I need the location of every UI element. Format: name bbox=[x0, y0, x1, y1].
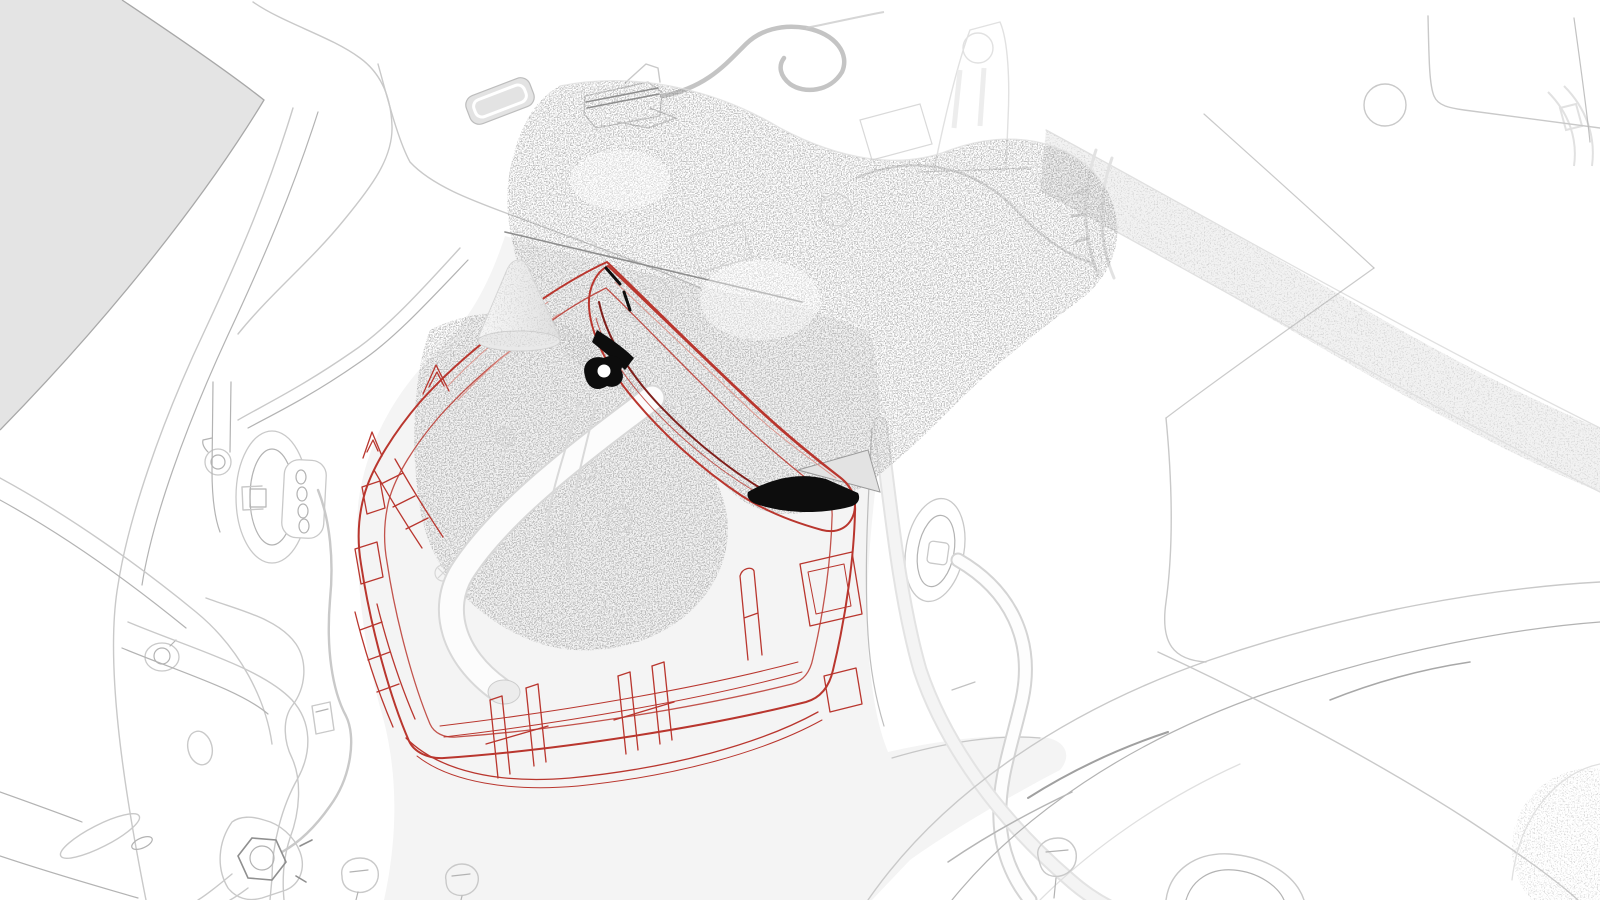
corner-ball bbox=[1512, 764, 1600, 900]
harness-cable bbox=[662, 27, 844, 96]
service-manual-illustration bbox=[0, 0, 1600, 900]
quarter-glass-shade bbox=[0, 0, 264, 430]
harness-cable-tail bbox=[806, 12, 884, 28]
isolation-pad bbox=[463, 75, 537, 127]
hex-bolt-assembly bbox=[198, 817, 312, 900]
harness-connector bbox=[488, 680, 520, 704]
sill-detail bbox=[1166, 854, 1304, 900]
panel-bolt-lower bbox=[145, 640, 179, 671]
panel-clip bbox=[312, 702, 334, 734]
rear-rail-tube bbox=[1040, 86, 1600, 492]
lightening-hole bbox=[1364, 84, 1406, 126]
striker-bolt bbox=[203, 438, 231, 475]
illustration-canvas bbox=[0, 0, 1600, 900]
push-clip-a bbox=[342, 858, 379, 900]
